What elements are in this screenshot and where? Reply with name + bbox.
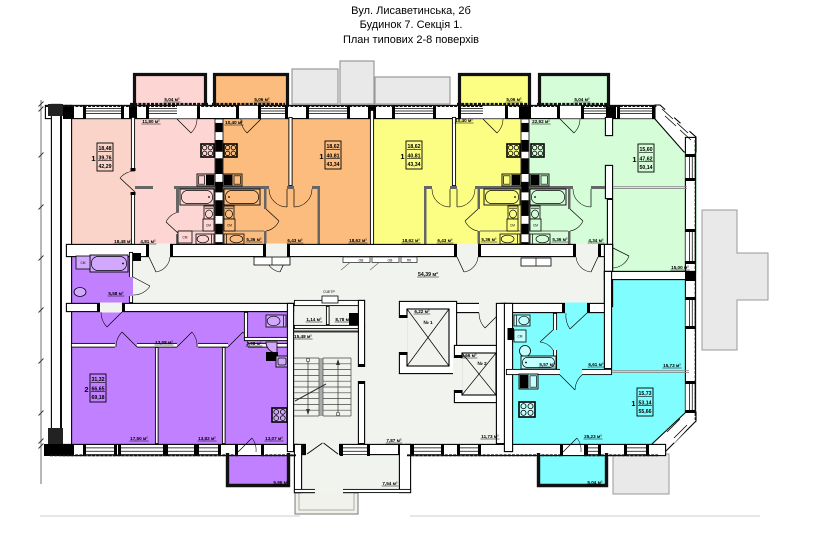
svg-text:СМ: СМ — [183, 235, 188, 239]
svg-text:1: 1 — [319, 152, 323, 161]
svg-text:5,58 м²: 5,58 м² — [108, 291, 124, 296]
svg-text:4,66 м²: 4,66 м² — [461, 353, 477, 358]
svg-text:5,06 м²: 5,06 м² — [506, 97, 522, 102]
svg-text:Будинок 7. Секція 1.: Будинок 7. Секція 1. — [360, 19, 463, 31]
svg-text:5,04 м²: 5,04 м² — [587, 480, 603, 485]
svg-text:Вул. Лисаветинська, 2б: Вул. Лисаветинська, 2б — [351, 5, 471, 17]
svg-text:План типових 2-8 поверхів: План типових 2-8 поверхів — [343, 34, 479, 46]
svg-text:43,34: 43,34 — [327, 162, 340, 168]
svg-text:10,40 м²: 10,40 м² — [455, 118, 473, 123]
svg-text:№ 2: № 2 — [477, 361, 487, 367]
svg-text:18,48 м²: 18,48 м² — [114, 239, 132, 244]
svg-text:25,23 м²: 25,23 м² — [584, 434, 602, 439]
svg-text:5,36 м²: 5,36 м² — [246, 237, 262, 242]
svg-text:5,57 м²: 5,57 м² — [539, 362, 555, 367]
svg-text:43,34: 43,34 — [408, 162, 421, 168]
svg-text:№ 1: № 1 — [423, 320, 433, 326]
svg-text:СМ: СМ — [510, 223, 515, 227]
svg-text:ОВ: ОВ — [359, 258, 365, 262]
svg-text:18,62 м²: 18,62 м² — [349, 238, 367, 243]
svg-text:СМ: СМ — [227, 223, 232, 227]
svg-text:15,48 м²: 15,48 м² — [294, 334, 312, 339]
svg-text:4,34 м²: 4,34 м² — [588, 238, 604, 243]
svg-text:69,18: 69,18 — [92, 395, 105, 401]
svg-text:6,43 м²: 6,43 м² — [437, 238, 453, 243]
svg-text:18,62 м²: 18,62 м² — [402, 238, 420, 243]
svg-text:1: 1 — [632, 155, 636, 164]
svg-text:1: 1 — [91, 154, 95, 163]
svg-text:СЧЕТР: СЧЕТР — [323, 290, 335, 294]
svg-text:5,36 м²: 5,36 м² — [552, 237, 568, 242]
svg-text:СМ: СМ — [518, 334, 523, 338]
svg-text:15,73 м²: 15,73 м² — [663, 363, 681, 368]
svg-text:11,80 м²: 11,80 м² — [142, 119, 160, 124]
svg-text:1,14 м²: 1,14 м² — [306, 317, 322, 322]
svg-text:42,29: 42,29 — [99, 164, 112, 170]
svg-text:7,54 м²: 7,54 м² — [382, 481, 398, 486]
svg-text:1: 1 — [400, 152, 404, 161]
svg-text:СМ: СМ — [81, 261, 86, 265]
svg-text:3,08 м²: 3,08 м² — [246, 341, 262, 346]
svg-text:5,04 м²: 5,04 м² — [574, 97, 590, 102]
svg-text:10,40 м²: 10,40 м² — [225, 120, 243, 125]
svg-text:5,04 м²: 5,04 м² — [164, 97, 180, 102]
svg-text:ОВ: ОВ — [388, 258, 394, 262]
svg-text:13,08 м²: 13,08 м² — [155, 340, 173, 345]
svg-text:13,07 м²: 13,07 м² — [265, 436, 283, 441]
svg-text:50,14: 50,14 — [640, 165, 653, 171]
svg-text:11,73 м²: 11,73 м² — [481, 434, 499, 439]
svg-text:15,00 м²: 15,00 м² — [671, 265, 689, 270]
svg-text:13,82 м²: 13,82 м² — [198, 436, 216, 441]
svg-text:5,06 м²: 5,06 м² — [254, 97, 270, 102]
svg-text:5,36 м²: 5,36 м² — [481, 237, 497, 242]
svg-text:8,78 м²: 8,78 м² — [335, 317, 351, 322]
svg-text:4,81 м²: 4,81 м² — [140, 239, 156, 244]
svg-text:6,61 м²: 6,61 м² — [588, 362, 604, 367]
svg-text:2: 2 — [84, 385, 88, 394]
svg-text:СМ: СМ — [533, 223, 538, 227]
svg-text:6,22 м²: 6,22 м² — [414, 309, 430, 314]
svg-text:СМ: СМ — [206, 223, 211, 227]
svg-text:6,43 м²: 6,43 м² — [287, 238, 303, 243]
svg-text:17,50 м²: 17,50 м² — [130, 436, 148, 441]
svg-text:7,87 м²: 7,87 м² — [386, 438, 402, 443]
svg-text:22,92 м²: 22,92 м² — [532, 119, 550, 124]
svg-text:ПК: ПК — [407, 258, 411, 262]
svg-text:55,66: 55,66 — [639, 409, 652, 415]
svg-text:5,96 м²: 5,96 м² — [273, 480, 289, 485]
svg-text:1: 1 — [631, 399, 635, 408]
